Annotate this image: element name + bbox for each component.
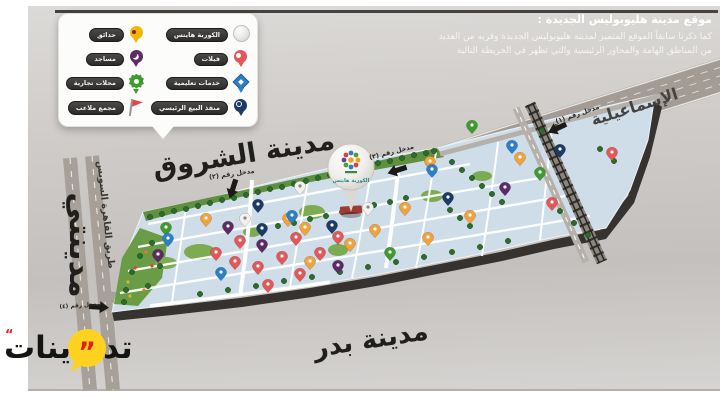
tree-icon [123, 287, 128, 292]
tree-icon [309, 274, 314, 279]
tree-icon [219, 197, 224, 202]
legend-item-shops: محلات تجارية [66, 72, 145, 96]
tree-icon [315, 175, 320, 180]
tree-icon [411, 152, 416, 157]
shops-pin-icon [128, 74, 145, 94]
tree-icon [137, 253, 142, 258]
legend-label: فيلات [194, 53, 228, 67]
playground-flag-icon [128, 98, 145, 118]
tree-icon [449, 249, 454, 254]
legend-item-playgrounds: مجمع ملاعب [66, 96, 145, 120]
legend-label: خدمات تعليمية [166, 77, 228, 91]
tree-icon [393, 259, 398, 264]
tree-icon [457, 215, 462, 220]
tree-icon [147, 214, 152, 219]
tree-icon [585, 232, 590, 237]
madinaty-label: مدينتي [62, 192, 98, 297]
tree-icon [489, 191, 494, 196]
watermark-quote-small: “ [5, 328, 14, 343]
tree-icon [571, 220, 576, 225]
flower-icon [126, 280, 129, 283]
flower-icon [150, 264, 153, 267]
balloon-pin-icon [232, 25, 249, 45]
legend-item-villas: فيلات [151, 47, 249, 71]
tree-icon [307, 216, 312, 221]
legend-panel: الكوربة هايتس فيلات خدمات تعليمية منفذ ا… [58, 13, 258, 127]
legend-label: محلات تجارية [66, 77, 124, 91]
tree-icon [479, 183, 484, 188]
legend-item-korba-heights: الكوربة هايتس [151, 23, 249, 47]
header-line-2: من المناطق الهامة والمحاور الرئيسية والت… [292, 44, 712, 58]
tree-icon [539, 128, 544, 133]
badr-city-label: مدينة بدر [309, 316, 430, 364]
tree-icon [477, 244, 482, 249]
watermark-bubble-icon: ” [68, 329, 106, 367]
flower-icon [128, 294, 131, 297]
tree-icon [387, 158, 392, 163]
page-title: موقع مدينة هليوبوليس الجديدة : [292, 13, 712, 26]
tree-icon [403, 195, 408, 200]
tree-icon [469, 175, 474, 180]
tree-icon [365, 264, 370, 269]
header-line-1: كما ذكرنا سابقاً الموقع المتميز لمدينة ه… [292, 30, 712, 44]
tree-icon [375, 160, 380, 165]
tree-icon [171, 208, 176, 213]
legend-column-right: الكوربة هايتس فيلات خدمات تعليمية منفذ ا… [151, 23, 249, 120]
header-text-block: موقع مدينة هليوبوليس الجديدة : كما ذكرنا… [292, 13, 712, 58]
tree-icon [243, 192, 248, 197]
map-pin [466, 120, 477, 134]
legend-item-sales-outlet: منفذ البيع الرئيسي [151, 96, 249, 120]
tree-icon [431, 148, 436, 153]
tree-icon [505, 238, 510, 243]
tree-icon [421, 254, 426, 259]
tree-icon [159, 211, 164, 216]
tree-icon [449, 159, 454, 164]
sales-outlet-pin-icon [232, 98, 249, 118]
tree-icon [253, 283, 258, 288]
watermark-text-right: تد [103, 333, 133, 364]
tree-icon [157, 263, 162, 268]
flower-icon [133, 266, 136, 269]
balloon-logo-text: الكوربة هايتس [333, 178, 370, 184]
tree-icon [499, 199, 504, 204]
tree-icon [323, 213, 328, 218]
tree-icon [281, 278, 286, 283]
legend-label: مساجد [86, 53, 124, 67]
tree-icon [597, 146, 602, 151]
infographic-page: الكوربة هايتس مدخل رقم (٢) مدخل رقم (٣) … [0, 0, 720, 404]
tree-icon [275, 223, 280, 228]
legend-item-education: خدمات تعليمية [151, 72, 249, 96]
tree-icon [207, 200, 212, 205]
tree-icon [145, 283, 150, 288]
education-pin-icon [232, 74, 249, 94]
tree-icon [557, 208, 562, 213]
legend-item-gardens: حدائق [66, 23, 145, 47]
legend-label: مجمع ملاعب [68, 101, 124, 115]
tree-icon [423, 150, 428, 155]
tree-icon [197, 291, 202, 296]
tree-icon [459, 167, 464, 172]
legend-column-left: حدائق مساجد محلات تجارية مجمع ملاعب [66, 23, 145, 120]
legend-item-mosques: مساجد [66, 47, 145, 71]
tree-icon [399, 155, 404, 160]
flower-icon [142, 288, 145, 291]
villas-pin-icon [232, 49, 249, 69]
legend-label: الكوربة هايتس [166, 28, 228, 42]
tree-icon [279, 184, 284, 189]
tree-icon [129, 269, 134, 274]
tree-icon [225, 287, 230, 292]
flower-icon [144, 250, 147, 253]
legend-label: حدائق [89, 28, 124, 42]
tree-icon [267, 186, 272, 191]
legend-label: منفذ البيع الرئيسي [151, 101, 228, 115]
tree-icon [183, 206, 188, 211]
mosque-pin-icon [128, 49, 145, 69]
tree-icon [447, 207, 452, 212]
watermark-text-left: ينات [4, 333, 71, 364]
tree-icon [387, 199, 392, 204]
gardens-pin-icon [128, 25, 145, 45]
watermark: “ تد ” ينات [4, 329, 133, 367]
tree-icon [195, 203, 200, 208]
tree-icon [121, 299, 126, 304]
tree-icon [255, 189, 260, 194]
tree-icon [149, 240, 154, 245]
